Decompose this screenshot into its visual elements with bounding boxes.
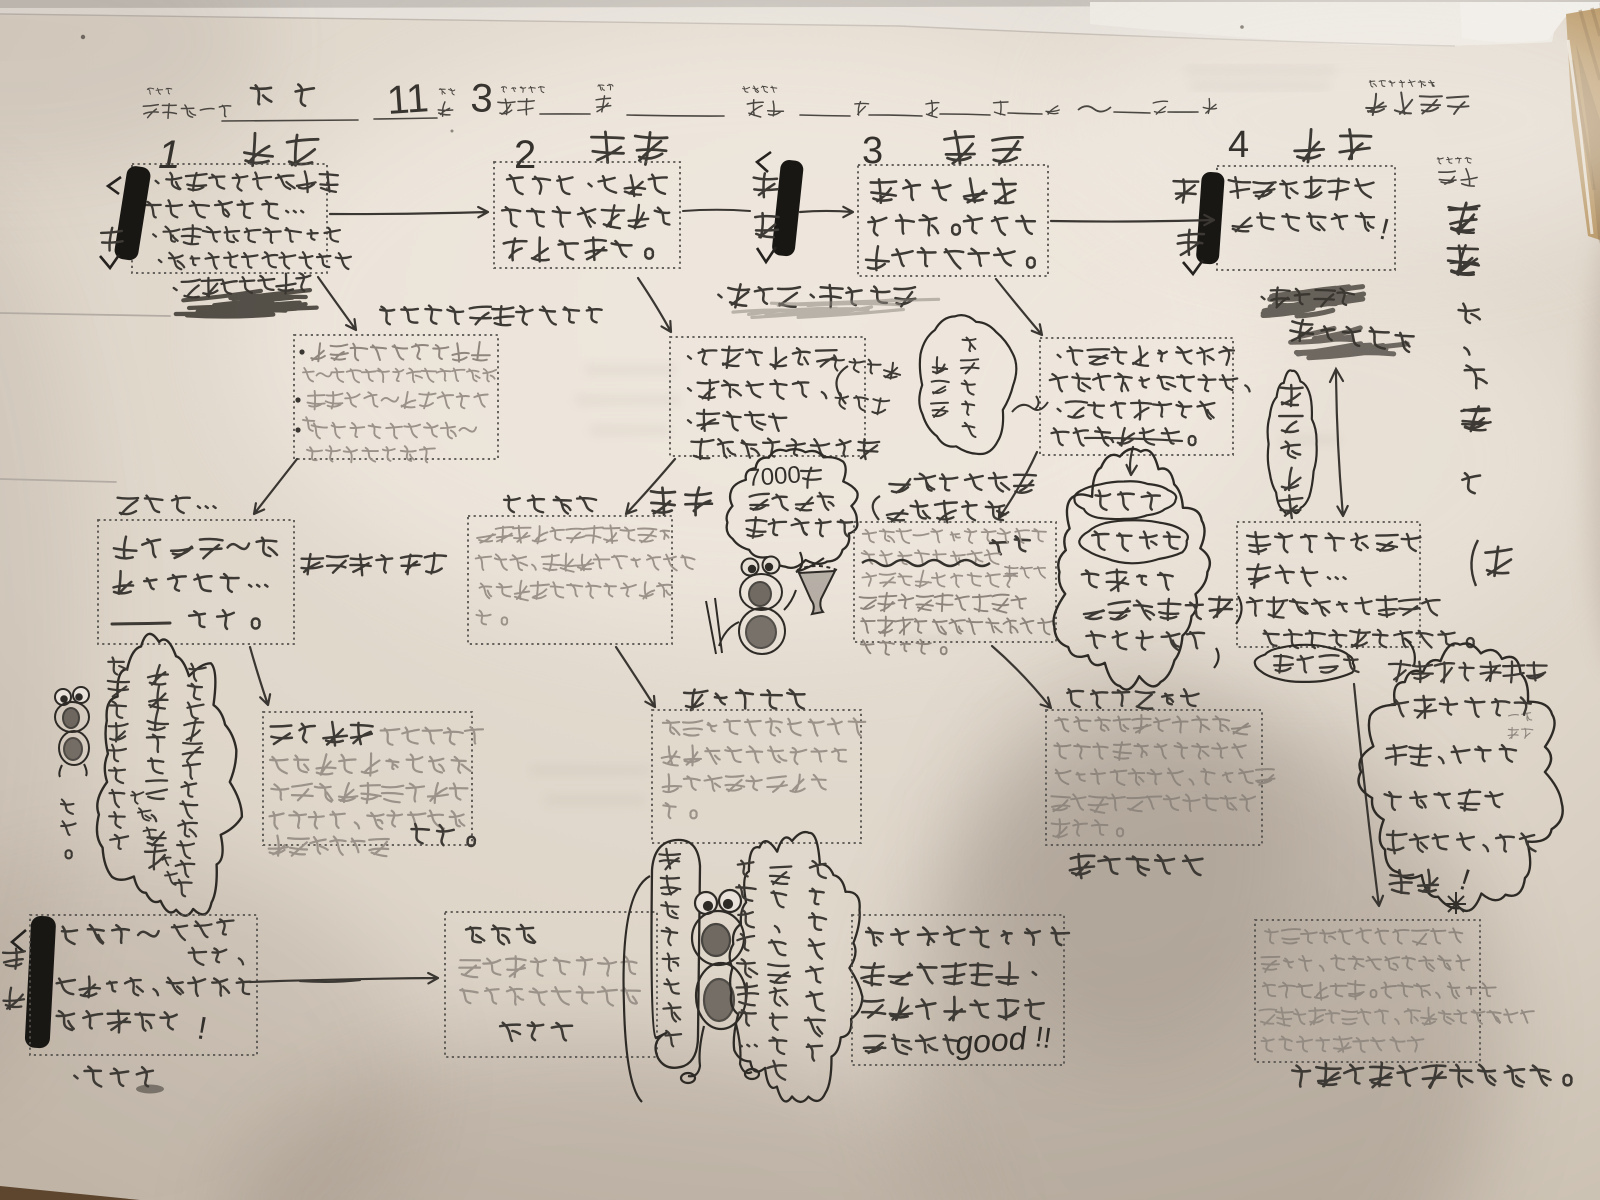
svg-text:7000: 7000	[747, 461, 802, 492]
svg-text:good: good	[954, 1020, 1029, 1061]
svg-text:1: 1	[158, 133, 180, 177]
svg-text:4: 4	[1228, 124, 1249, 166]
svg-text:11: 11	[386, 76, 430, 123]
svg-text:2: 2	[514, 133, 536, 177]
svg-text:3: 3	[470, 76, 495, 121]
